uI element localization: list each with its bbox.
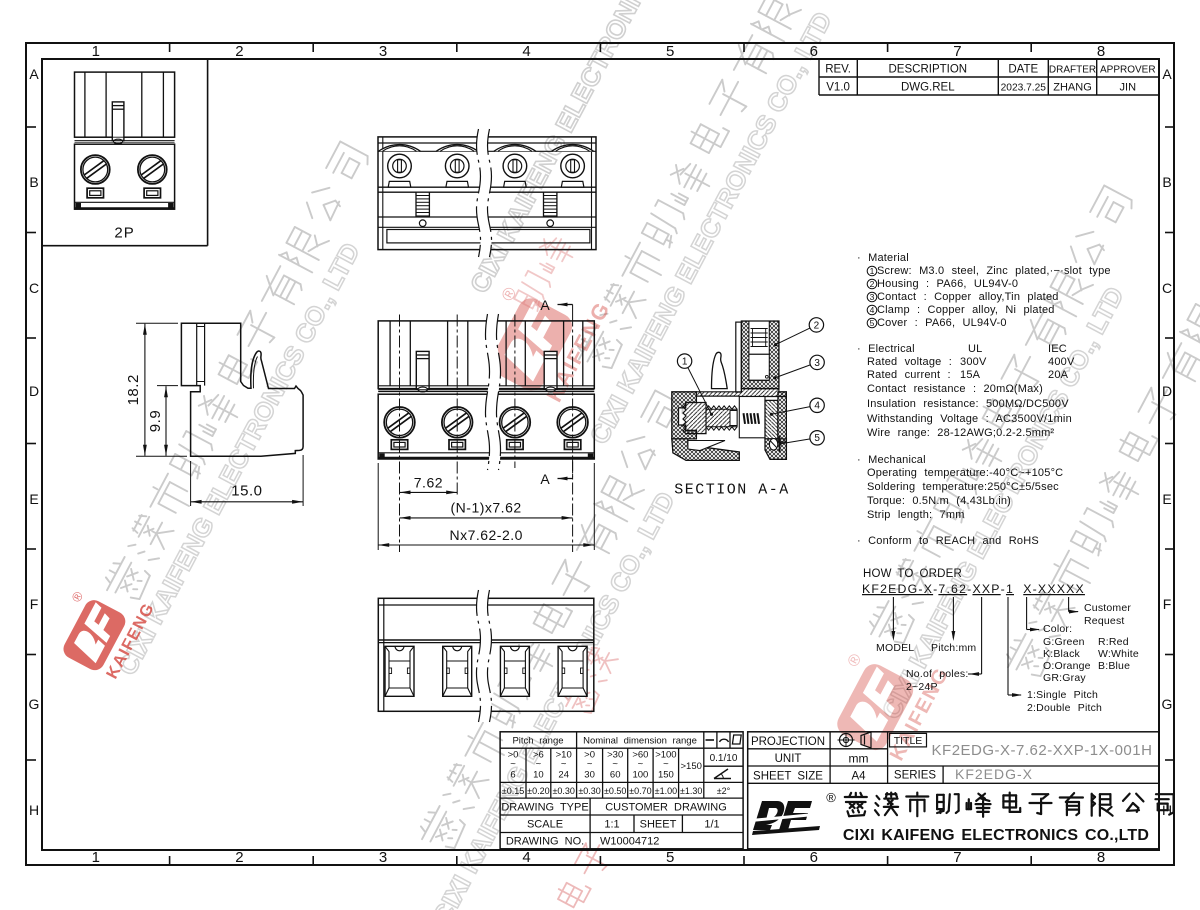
svg-text:Insulation resistance: 500MΩ/D: Insulation resistance: 500MΩ/DC500V: [867, 398, 1069, 410]
svg-text:B: B: [1162, 174, 1171, 190]
svg-text:A: A: [540, 297, 550, 313]
svg-text:6: 6: [810, 849, 818, 866]
svg-text:MODEL: MODEL: [876, 642, 914, 654]
svg-text:CIXI KAIFENG ELECTRONICS CO.,L: CIXI KAIFENG ELECTRONICS CO.,LTD: [843, 827, 1149, 844]
svg-text:SHEET SIZE: SHEET SIZE: [753, 771, 823, 783]
svg-text:SERIES: SERIES: [894, 770, 937, 782]
svg-text:(N-1)x7.62: (N-1)x7.62: [451, 500, 522, 516]
svg-text:A4: A4: [851, 771, 866, 783]
svg-text:6: 6: [810, 43, 818, 60]
svg-text:F: F: [30, 596, 39, 612]
svg-text:18.2: 18.2: [125, 374, 142, 405]
svg-text:400V: 400V: [1048, 356, 1075, 368]
svg-text:2: 2: [235, 43, 243, 60]
svg-text:DWG.REL: DWG.REL: [901, 82, 955, 94]
svg-text:2: 2: [870, 279, 875, 289]
svg-text:3: 3: [870, 292, 875, 302]
svg-text:B:Blue: B:Blue: [1098, 660, 1130, 672]
svg-text:~: ~: [561, 759, 567, 770]
svg-text:~: ~: [612, 759, 618, 770]
svg-text:Contact resistance : 20mΩ(Max): Contact resistance : 20mΩ(Max): [867, 383, 1043, 395]
svg-text:DESCRIPTION: DESCRIPTION: [889, 64, 968, 76]
svg-text:7: 7: [953, 849, 961, 866]
svg-text:±0.30: ±0.30: [578, 786, 600, 796]
svg-text:HOW TO ORDER: HOW TO ORDER: [863, 568, 962, 580]
svg-text:CIXI KAIFENG ELECTRONICS CO.,: CIXI KAIFENG ELECTRONICS CO., LTD: [584, 7, 838, 449]
svg-text:PROJECTION: PROJECTION: [751, 736, 825, 748]
svg-text:G: G: [29, 696, 40, 712]
svg-text:7: 7: [953, 43, 961, 60]
svg-text:6: 6: [510, 770, 515, 781]
svg-text:C: C: [1162, 280, 1172, 296]
svg-text:~: ~: [510, 759, 516, 770]
svg-text:No.of poles:: No.of poles:: [906, 668, 968, 680]
svg-text:2: 2: [814, 320, 820, 331]
svg-text:5: 5: [666, 43, 674, 60]
svg-text:1: 1: [92, 43, 100, 60]
svg-text:8: 8: [1097, 43, 1105, 60]
svg-text:2:Double Pitch: 2:Double Pitch: [1027, 702, 1102, 714]
svg-text:D: D: [1162, 383, 1172, 399]
svg-text:24: 24: [558, 770, 569, 781]
svg-text:100: 100: [632, 770, 648, 781]
svg-text:R:Red: R:Red: [1098, 636, 1129, 648]
svg-text:DATE: DATE: [1008, 64, 1038, 76]
svg-text:1: 1: [682, 357, 688, 368]
svg-text:®: ®: [844, 651, 866, 670]
svg-text:0.1/10: 0.1/10: [710, 753, 738, 764]
svg-text:±0.30: ±0.30: [552, 786, 574, 796]
svg-text:1:Single Pitch: 1:Single Pitch: [1027, 689, 1098, 701]
svg-text:Pitch range: Pitch range: [512, 736, 563, 747]
svg-text:SECTION A-A: SECTION A-A: [674, 482, 790, 499]
svg-text:®: ®: [68, 589, 86, 605]
svg-text:TITLE: TITLE: [894, 735, 923, 747]
svg-text:O:Orange: O:Orange: [1043, 660, 1091, 672]
svg-text:KF2EDG-X-7.62-XXP-1 X-XXXXX: KF2EDG-X-7.62-XXP-1 X-XXXXX: [862, 582, 1085, 596]
svg-text:Soldering temperature:250°C±5/: Soldering temperature:250°C±5/5sec: [867, 481, 1059, 493]
svg-text:SCALE: SCALE: [527, 819, 563, 831]
svg-text:REV.: REV.: [825, 64, 851, 76]
svg-text:C: C: [29, 280, 39, 296]
svg-text:A: A: [29, 66, 39, 82]
svg-text:~: ~: [587, 759, 593, 770]
svg-text:3: 3: [379, 43, 387, 60]
svg-text:E: E: [29, 491, 38, 507]
svg-text:Nominal dimension range: Nominal dimension range: [583, 736, 697, 747]
svg-text:E: E: [1162, 491, 1171, 507]
svg-text:Withstanding Voltage : AC3500V: Withstanding Voltage : AC3500V/1min: [867, 413, 1072, 425]
svg-text:4: 4: [522, 43, 530, 60]
svg-text:Request: Request: [1084, 615, 1125, 627]
svg-text:10: 10: [533, 770, 544, 781]
svg-text:K:Black: K:Black: [1043, 648, 1081, 660]
svg-text:DRAFTER: DRAFTER: [1049, 65, 1096, 76]
svg-text:3: 3: [379, 849, 387, 866]
svg-text:GR:Gray: GR:Gray: [1043, 672, 1086, 684]
svg-text:Cover : PA66, UL94V-0: Cover : PA66, UL94V-0: [877, 317, 1007, 329]
svg-text:ZHANG: ZHANG: [1053, 82, 1092, 94]
svg-text:±0.15: ±0.15: [502, 786, 524, 796]
svg-text:IEC: IEC: [1048, 343, 1067, 355]
svg-text:±1.00: ±1.00: [655, 786, 677, 796]
svg-text:APPROVER: APPROVER: [1100, 65, 1156, 76]
svg-text:A: A: [540, 471, 550, 487]
svg-text:4: 4: [870, 305, 875, 315]
svg-text:G:Green: G:Green: [1043, 636, 1085, 648]
svg-text:7.62: 7.62: [414, 475, 443, 491]
svg-text:H: H: [29, 802, 39, 818]
svg-text:W10004712: W10004712: [600, 836, 659, 848]
svg-text:4: 4: [522, 849, 530, 866]
svg-text:Pitch:mm: Pitch:mm: [931, 642, 976, 654]
svg-text:mm: mm: [849, 752, 869, 766]
svg-text:Operating temperature:-40°C~+1: Operating temperature:-40°C~+105°C: [867, 467, 1063, 479]
svg-text:Torque: 0.5N.m (4.43Lb.in): Torque: 0.5N.m (4.43Lb.in): [867, 495, 1011, 507]
svg-text:60: 60: [610, 770, 621, 781]
svg-text:Strip length: 7mm: Strip length: 7mm: [867, 509, 965, 521]
svg-text:2: 2: [235, 849, 243, 866]
svg-text:Clamp : Copper alloy, Ni plate: Clamp : Copper alloy, Ni plated: [877, 304, 1055, 316]
svg-text:±1.30: ±1.30: [680, 786, 702, 796]
svg-text:1: 1: [870, 266, 875, 276]
svg-text:G: G: [1162, 696, 1173, 712]
svg-text:DRAWING NO.: DRAWING NO.: [506, 836, 584, 848]
svg-text:1: 1: [92, 849, 100, 866]
svg-text:1/1: 1/1: [704, 819, 719, 831]
svg-text:9.9: 9.9: [147, 410, 164, 432]
svg-text:Screw: M3.0 steel, Zinc plated: Screw: M3.0 steel, Zinc plated,·−·slot t…: [877, 265, 1111, 277]
svg-text:2P: 2P: [114, 225, 134, 242]
svg-text:F: F: [1163, 596, 1172, 612]
svg-text:Wire range: 28-12AWG;0.2-2.5mm: Wire range: 28-12AWG;0.2-2.5mm²: [867, 427, 1055, 439]
svg-text:· Material: · Material: [857, 252, 909, 264]
svg-text:D: D: [29, 383, 39, 399]
svg-text:· Conform to REACH and RoHS: · Conform to REACH and RoHS: [857, 535, 1039, 547]
svg-text:Rated voltage :: Rated voltage :: [867, 356, 952, 368]
svg-text:5: 5: [666, 849, 674, 866]
svg-text:±0.70: ±0.70: [629, 786, 651, 796]
svg-text:300V: 300V: [960, 356, 987, 368]
svg-text:V1.0: V1.0: [826, 82, 850, 94]
svg-text:UNIT: UNIT: [775, 753, 802, 765]
svg-text:B: B: [29, 174, 38, 190]
svg-text:2~24P: 2~24P: [906, 681, 938, 693]
svg-text:Nx7.62-2.0: Nx7.62-2.0: [449, 527, 522, 543]
svg-text:~: ~: [536, 759, 542, 770]
svg-text:UL: UL: [968, 343, 982, 355]
svg-text:· Mechanical: · Mechanical: [857, 454, 926, 466]
svg-text:±0.20: ±0.20: [527, 786, 549, 796]
svg-text:W:White: W:White: [1098, 648, 1139, 660]
svg-text:A: A: [1162, 66, 1172, 82]
svg-text:DRAWING TYPE: DRAWING TYPE: [501, 802, 588, 814]
svg-text:8: 8: [1097, 849, 1105, 866]
svg-text:CUSTOMER DRAWING: CUSTOMER DRAWING: [605, 802, 727, 814]
svg-text:®: ®: [826, 790, 836, 805]
svg-text:±0.50: ±0.50: [604, 786, 626, 796]
svg-text:3: 3: [814, 358, 820, 369]
svg-text:4: 4: [814, 401, 820, 412]
svg-text:Customer: Customer: [1084, 602, 1131, 614]
svg-text:2023.7.25: 2023.7.25: [1001, 83, 1047, 94]
svg-text:KF2EDG-X-7.62-XXP-1X-001H: KF2EDG-X-7.62-XXP-1X-001H: [932, 742, 1153, 759]
svg-text:>150: >150: [680, 761, 701, 772]
svg-text:Housing : PA66, UL94V-0: Housing : PA66, UL94V-0: [877, 278, 1018, 290]
svg-text:Color:: Color:: [1043, 623, 1072, 635]
svg-text:15A: 15A: [960, 369, 981, 381]
svg-text:±2°: ±2°: [717, 786, 731, 796]
svg-text:30: 30: [584, 770, 595, 781]
svg-text:KF2EDG-X: KF2EDG-X: [955, 766, 1033, 782]
svg-text:~: ~: [638, 759, 644, 770]
svg-text:~: ~: [663, 759, 669, 770]
svg-text:SHEET: SHEET: [640, 819, 677, 831]
svg-text:JIN: JIN: [1120, 82, 1137, 94]
svg-text:5: 5: [870, 318, 875, 328]
svg-text:20A: 20A: [1048, 369, 1069, 381]
svg-text:Rated current :: Rated current :: [867, 369, 951, 381]
svg-text:150: 150: [658, 770, 674, 781]
svg-text:1:1: 1:1: [604, 819, 619, 831]
svg-text:· Electrical: · Electrical: [857, 343, 915, 355]
svg-text:Contact : Copper alloy,Tin pla: Contact : Copper alloy,Tin plated: [877, 291, 1059, 303]
svg-text:15.0: 15.0: [231, 483, 262, 500]
svg-text:5: 5: [814, 433, 820, 444]
